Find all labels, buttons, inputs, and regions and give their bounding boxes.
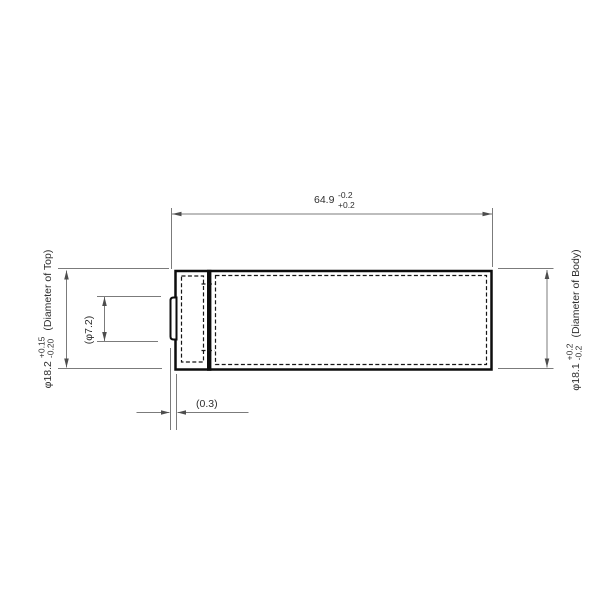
button-diameter-value: (φ7.2) (83, 316, 95, 344)
length-tolerance-stack: -0.2 +0.2 (338, 190, 355, 210)
top-diameter-dimension-lines (58, 269, 169, 369)
arrow-down-icon (545, 359, 550, 368)
top-diameter-description: (Diameter of Top) (42, 250, 54, 331)
technical-drawing-canvas: 64.9 -0.2 +0.2 φ18.2 +0.15 -0.20 (Diamet… (0, 0, 600, 600)
arrow-left-icon (172, 212, 182, 217)
arrow-up-icon (64, 271, 69, 280)
button-diameter-label: (φ7.2) (82, 310, 96, 350)
button-gap-value: (0.3) (196, 398, 218, 410)
battery-terminal-button (171, 298, 177, 340)
battery-body-outline (176, 271, 492, 370)
button-diameter-dimension-lines (97, 297, 161, 342)
top-diameter-value: φ18.2 (42, 361, 54, 388)
arrow-right-icon (161, 410, 170, 414)
top-diameter-label: φ18.2 +0.15 -0.20 (Diameter of Top) (37, 241, 59, 397)
length-dimension-lines (172, 208, 493, 269)
arrow-up-icon (545, 270, 550, 279)
battery-outline (171, 270, 492, 371)
cap-body-joint-line (207, 270, 211, 371)
arrow-down-icon (102, 332, 107, 341)
body-diameter-tolerance-stack: +0.2 -0.2 (565, 344, 584, 361)
body-diameter-value: φ18.1 (570, 363, 582, 390)
body-diameter-description: (Diameter of Body) (570, 249, 582, 337)
length-tolerance-upper: -0.2 (338, 190, 355, 200)
battery-dimension-drawing (0, 0, 600, 600)
length-tolerance-lower: +0.2 (338, 200, 355, 210)
body-diameter-dimension-lines (498, 269, 554, 369)
top-diameter-tolerance-lower: -0.20 (47, 337, 57, 359)
top-diameter-tolerance-stack: +0.15 -0.20 (37, 337, 56, 359)
length-dimension-value: 64.9 (314, 194, 334, 206)
body-diameter-label: φ18.1 +0.2 -0.2 (Diameter of Body) (565, 248, 587, 392)
arrow-right-icon (483, 212, 493, 217)
arrow-down-icon (64, 359, 69, 368)
arrow-up-icon (102, 297, 107, 306)
body-diameter-tolerance-lower: -0.2 (575, 344, 585, 361)
arrow-left-icon (178, 410, 187, 414)
